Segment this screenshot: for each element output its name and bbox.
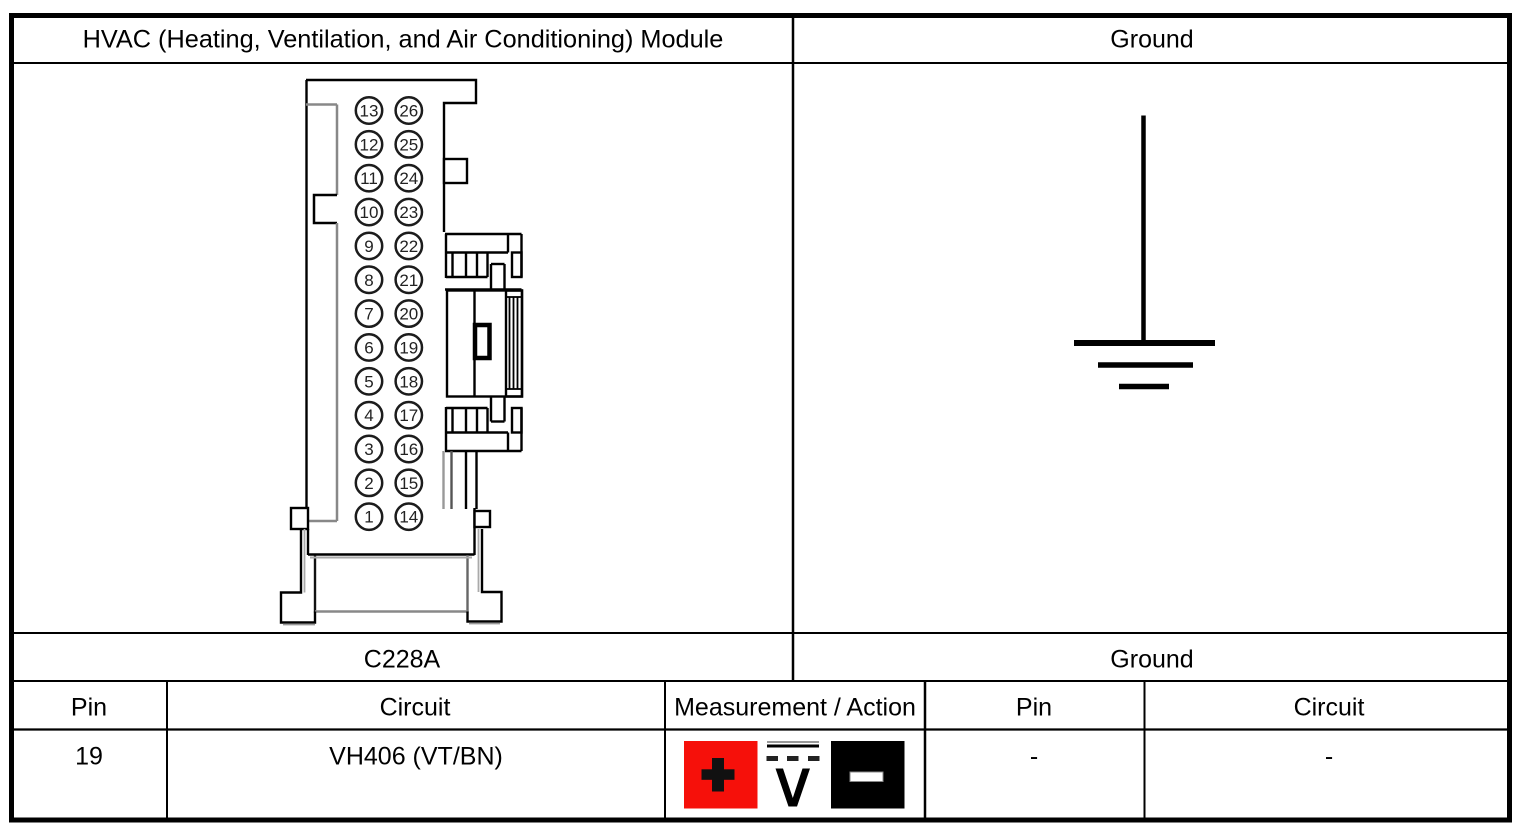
- svg-text:15: 15: [399, 474, 418, 493]
- svg-text:12: 12: [360, 135, 379, 154]
- svg-text:25: 25: [399, 135, 418, 154]
- svg-text:10: 10: [360, 203, 379, 222]
- svg-text:24: 24: [399, 169, 418, 188]
- svg-text:26: 26: [399, 102, 418, 121]
- svg-text:7: 7: [364, 305, 373, 324]
- svg-text:2: 2: [364, 474, 373, 493]
- svg-text:5: 5: [364, 372, 373, 391]
- svg-text:4: 4: [364, 406, 373, 425]
- svg-text:13: 13: [360, 102, 379, 121]
- svg-text:3: 3: [364, 440, 373, 459]
- svg-text:9: 9: [364, 237, 373, 256]
- svg-text:20: 20: [399, 305, 418, 324]
- svg-text:8: 8: [364, 271, 373, 290]
- svg-text:1: 1: [364, 508, 373, 527]
- svg-text:19: 19: [399, 338, 418, 357]
- svg-text:11: 11: [360, 169, 378, 188]
- svg-text:6: 6: [364, 338, 373, 357]
- svg-text:21: 21: [399, 271, 418, 290]
- svg-text:18: 18: [399, 372, 418, 391]
- svg-text:22: 22: [399, 237, 418, 256]
- svg-text:14: 14: [399, 508, 418, 527]
- svg-text:16: 16: [399, 440, 418, 459]
- svg-text:17: 17: [399, 406, 418, 425]
- svg-text:23: 23: [399, 203, 418, 222]
